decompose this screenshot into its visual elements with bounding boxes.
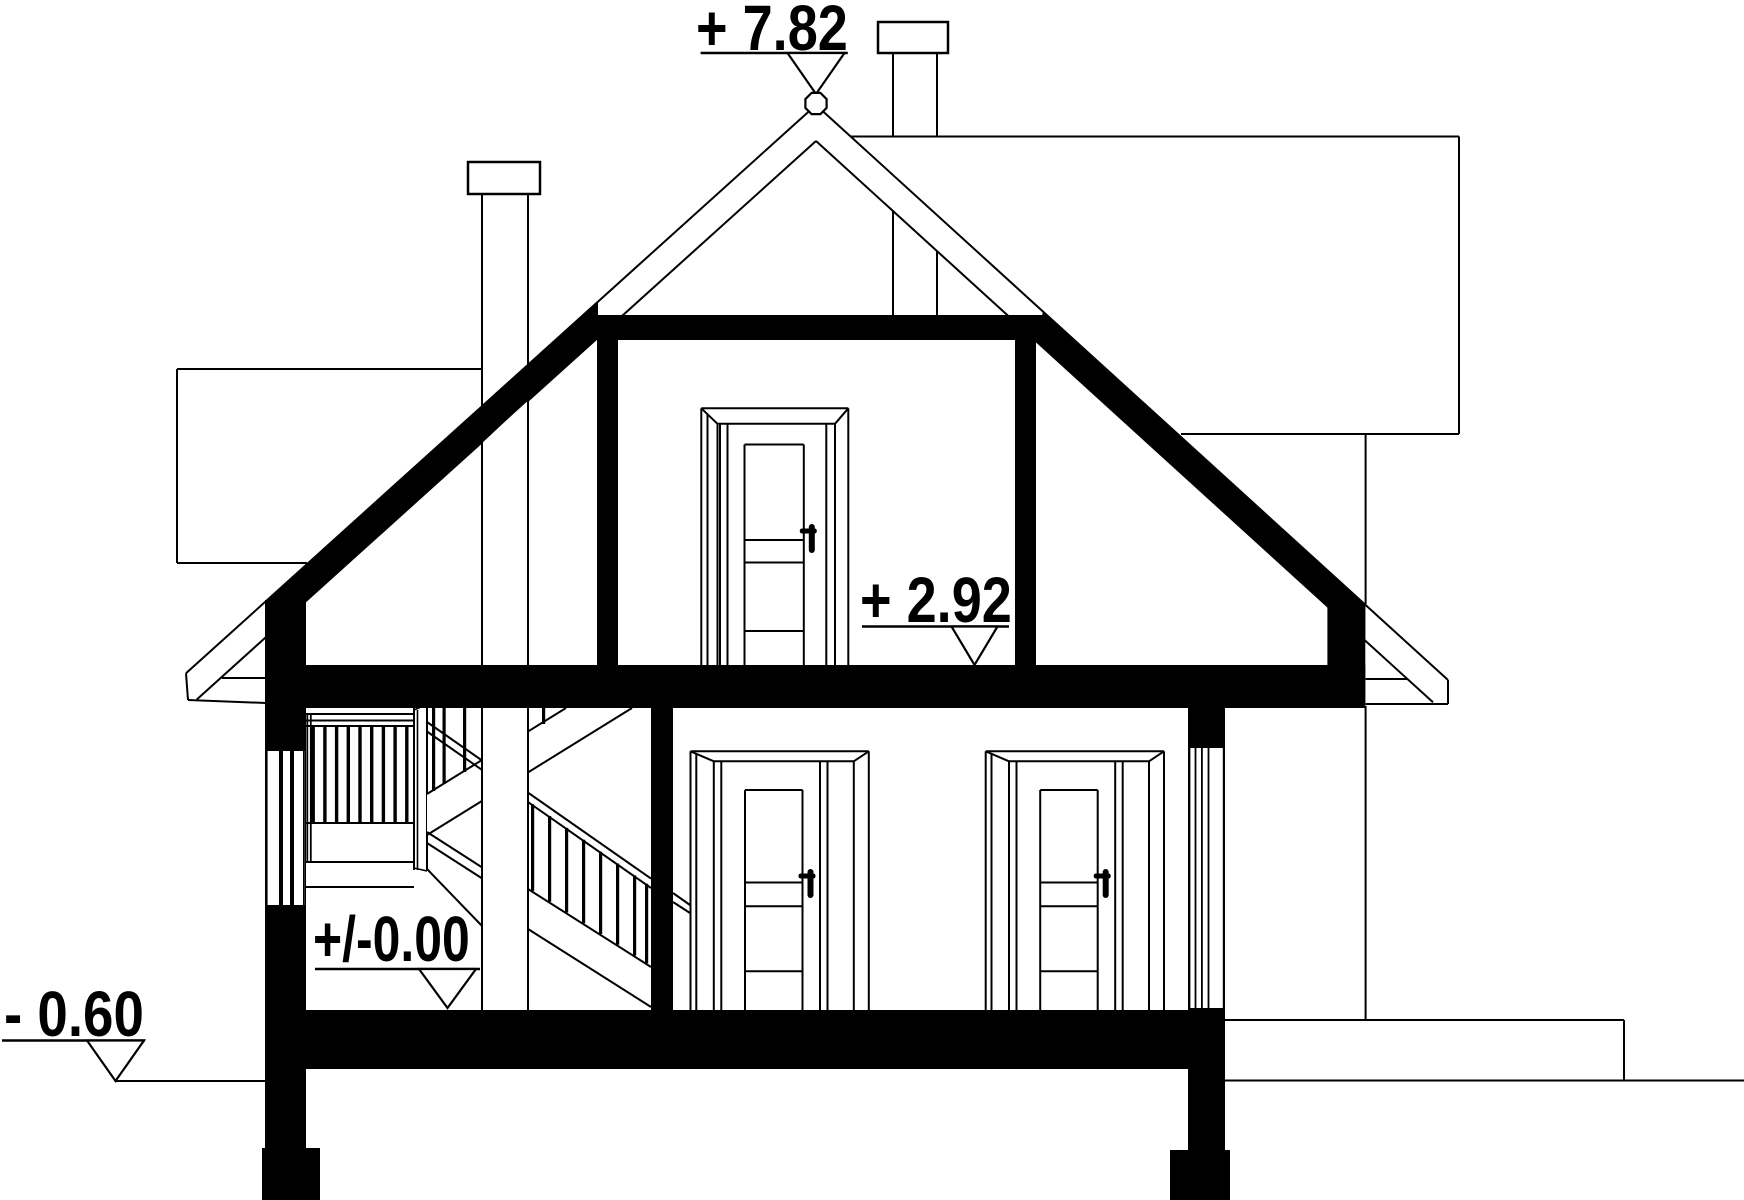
svg-text:+ 7.82: + 7.82 [696,0,848,64]
svg-text:+/-0.00: +/-0.00 [313,904,470,975]
svg-text:- 0.60: - 0.60 [4,978,144,1050]
svg-text:+ 2.92: + 2.92 [860,564,1012,636]
